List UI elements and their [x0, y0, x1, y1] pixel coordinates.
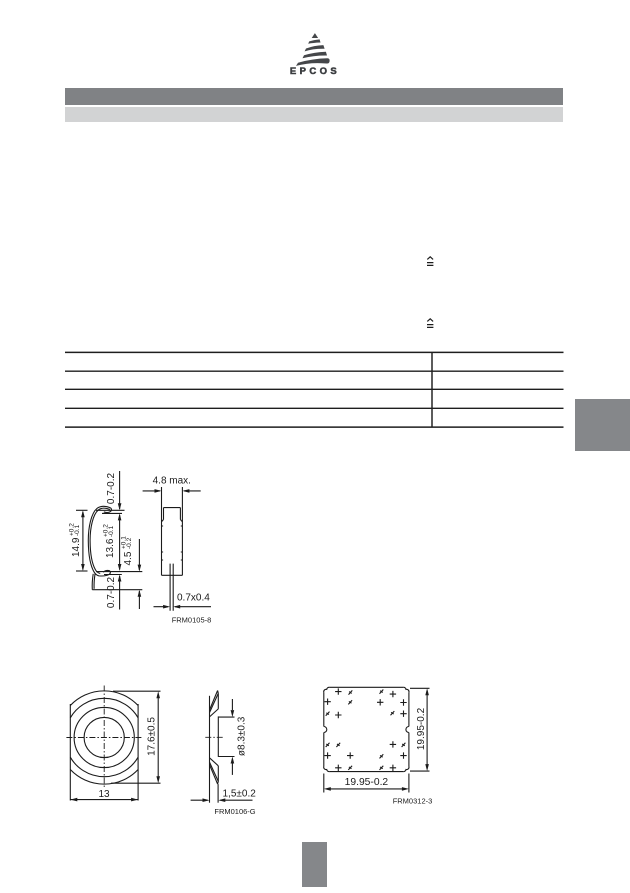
svg-text:1,5±0.2: 1,5±0.2 — [223, 788, 257, 799]
svg-text:19.95-0.2: 19.95-0.2 — [416, 707, 427, 750]
svg-text:4.8 max.: 4.8 max. — [153, 475, 191, 486]
svg-text:13.6: 13.6 — [105, 538, 116, 558]
svg-text:-0.1: -0.1 — [108, 525, 115, 537]
svg-text:17.6±0.5: 17.6±0.5 — [147, 717, 158, 756]
svg-text:-0.1: -0.1 — [74, 524, 81, 536]
svg-text:19.95-0.2: 19.95-0.2 — [345, 777, 389, 788]
svg-text:FRM0312-3: FRM0312-3 — [393, 797, 433, 806]
svg-text:ø8.3±0.3: ø8.3±0.3 — [237, 716, 248, 756]
svg-text:0.7x0.4: 0.7x0.4 — [177, 593, 210, 604]
svg-text:0.7-0.2: 0.7-0.2 — [106, 576, 117, 608]
svg-text:4.5: 4.5 — [123, 551, 134, 565]
svg-text:-0.2: -0.2 — [126, 537, 133, 549]
svg-text:0.7-0.2: 0.7-0.2 — [106, 472, 117, 504]
svg-text:14.9: 14.9 — [71, 537, 82, 557]
svg-text:FRM0106-G: FRM0106-G — [214, 807, 255, 816]
svg-text:FRM0105-8: FRM0105-8 — [172, 615, 212, 624]
svg-text:13: 13 — [98, 789, 110, 800]
